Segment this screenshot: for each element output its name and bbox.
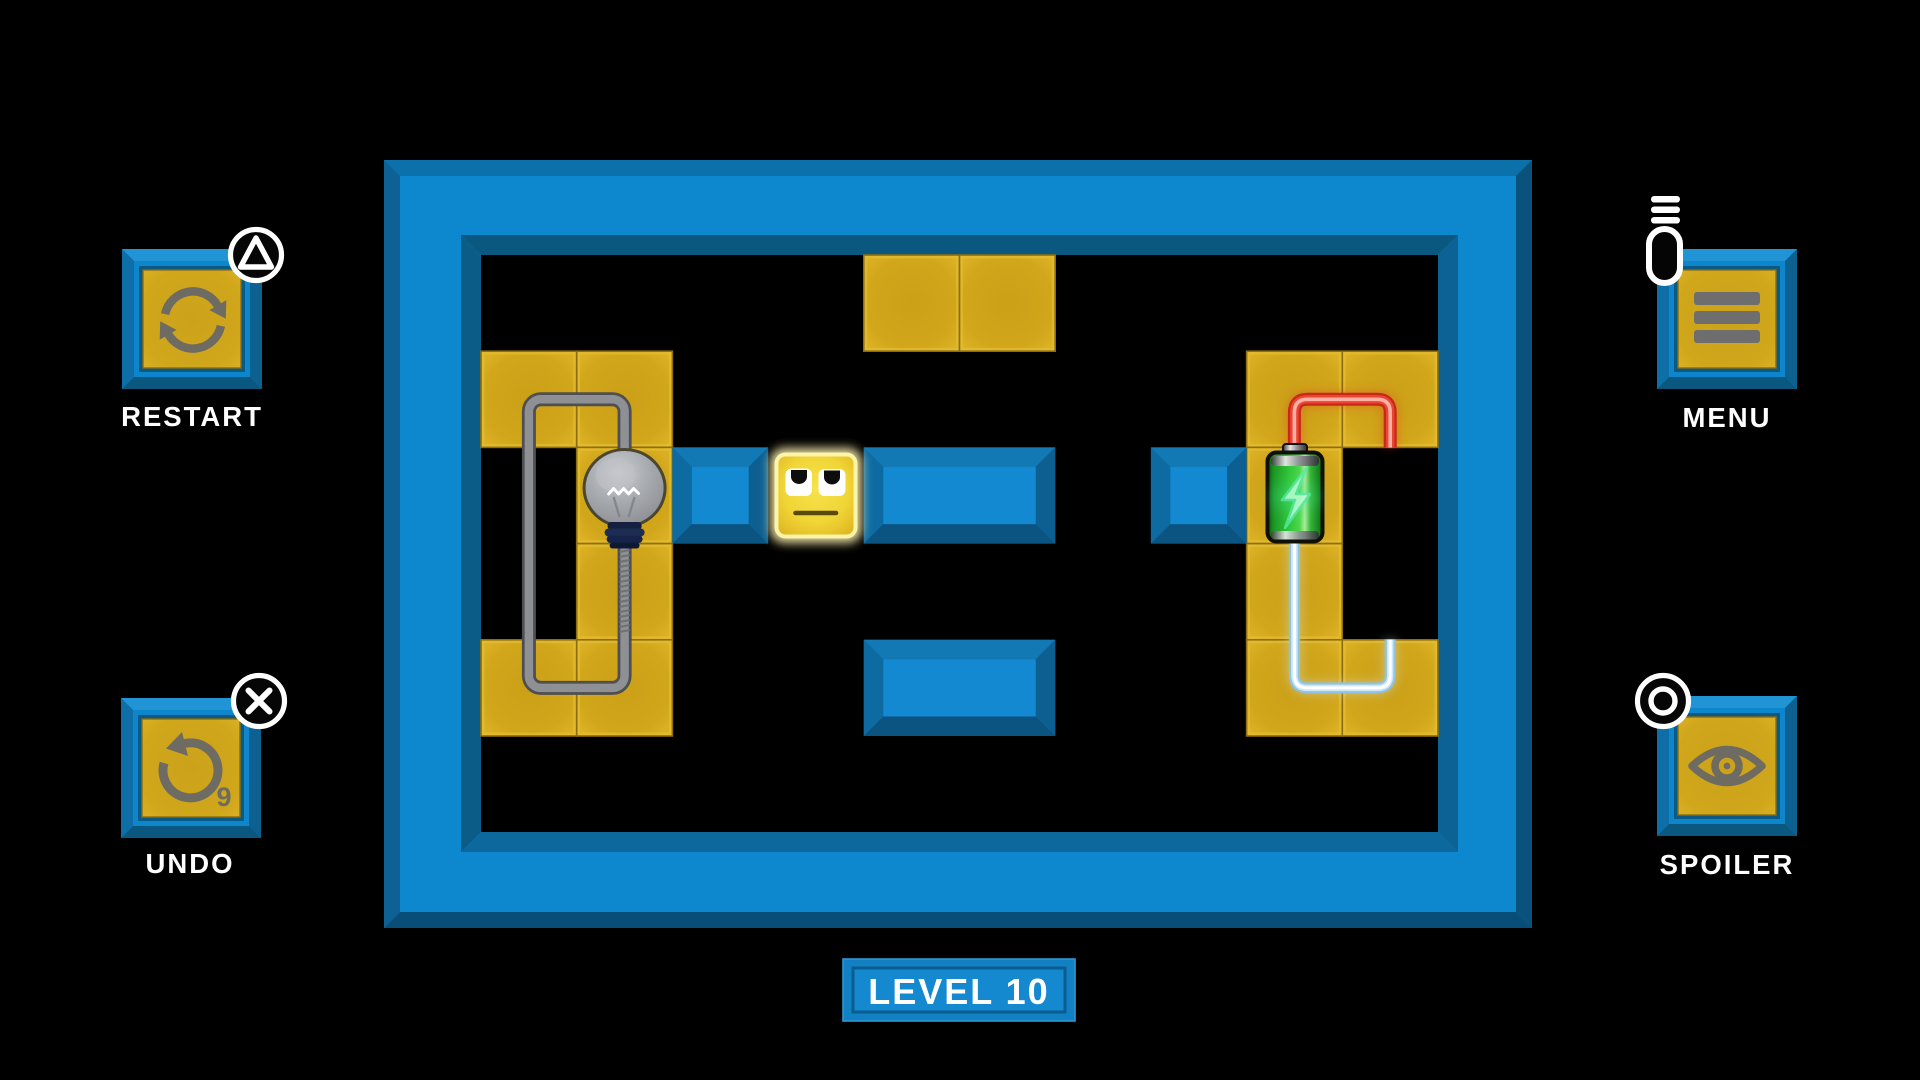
svg-text:SPOILER: SPOILER [1660, 849, 1795, 880]
svg-text:RESTART: RESTART [121, 401, 263, 432]
svg-text:UNDO: UNDO [146, 848, 235, 879]
svg-text:9: 9 [216, 782, 231, 812]
svg-text:MENU: MENU [1683, 402, 1772, 433]
svg-text:LEVEL 10: LEVEL 10 [868, 971, 1049, 1012]
